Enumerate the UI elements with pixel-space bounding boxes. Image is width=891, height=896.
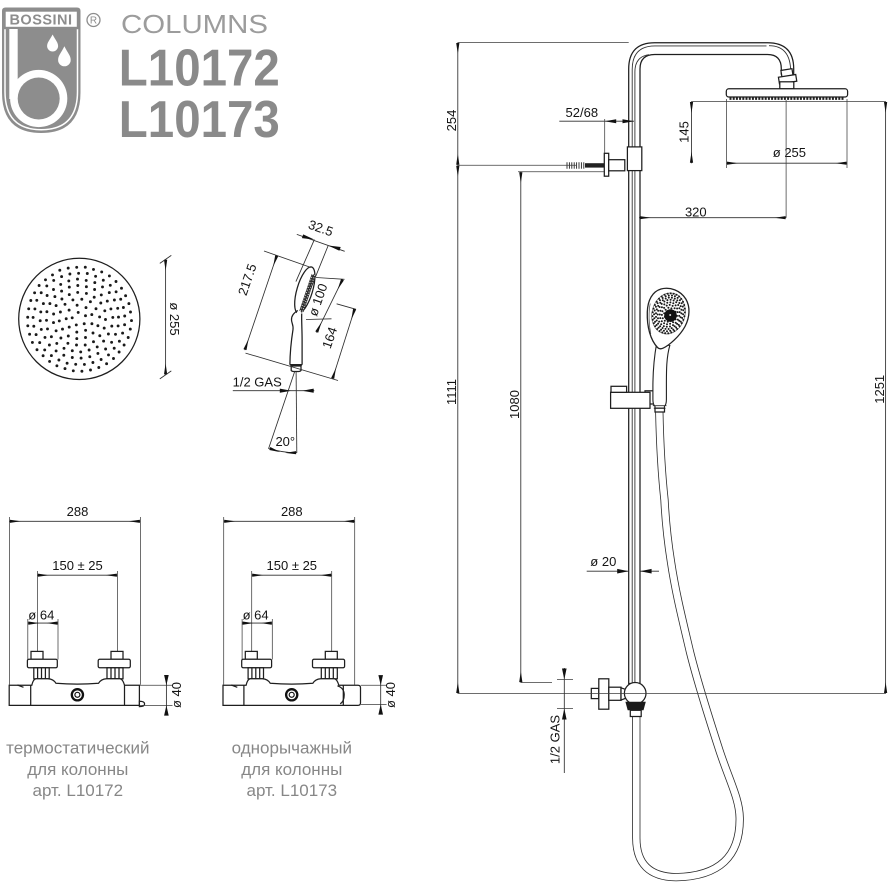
svg-text:ø 64: ø 64 [28, 608, 54, 623]
svg-text:150 ± 25: 150 ± 25 [52, 558, 103, 573]
svg-text:1080: 1080 [507, 390, 522, 419]
svg-text:L10173: L10173 [119, 91, 280, 149]
svg-text:320: 320 [685, 205, 707, 220]
svg-text:BOSSINI: BOSSINI [9, 13, 72, 29]
svg-text:1251: 1251 [872, 375, 887, 404]
svg-text:L10172: L10172 [119, 40, 280, 98]
svg-text:150 ± 25: 150 ± 25 [267, 558, 318, 573]
svg-text:288: 288 [281, 504, 303, 519]
svg-text:ø 40: ø 40 [169, 682, 184, 708]
svg-text:ø 20: ø 20 [590, 554, 616, 569]
svg-text:ø 255: ø 255 [773, 145, 806, 160]
svg-text:145: 145 [676, 121, 691, 143]
svg-text:для колонны: для колонны [241, 760, 342, 779]
svg-text:ø 64: ø 64 [243, 608, 269, 623]
svg-text:однорычажный: однорычажный [232, 739, 352, 758]
svg-text:1111: 1111 [444, 379, 459, 405]
svg-text:ø 40: ø 40 [383, 682, 398, 708]
svg-text:арт. L10172: арт. L10172 [32, 781, 123, 800]
svg-text:1/2 GAS: 1/2 GAS [233, 375, 282, 390]
svg-text:20°: 20° [275, 434, 295, 449]
svg-text:арт. L10173: арт. L10173 [246, 781, 337, 800]
svg-text:для колонны: для колонны [27, 760, 128, 779]
svg-text:термостатический: термостатический [6, 739, 149, 758]
svg-text:COLUMNS: COLUMNS [121, 9, 268, 39]
svg-text:254: 254 [444, 110, 459, 132]
svg-text:ø 255: ø 255 [167, 302, 182, 335]
svg-text:288: 288 [67, 504, 89, 519]
svg-text:R: R [90, 16, 97, 27]
svg-text:52/68: 52/68 [566, 105, 599, 120]
svg-text:1/2 GAS: 1/2 GAS [547, 715, 562, 764]
